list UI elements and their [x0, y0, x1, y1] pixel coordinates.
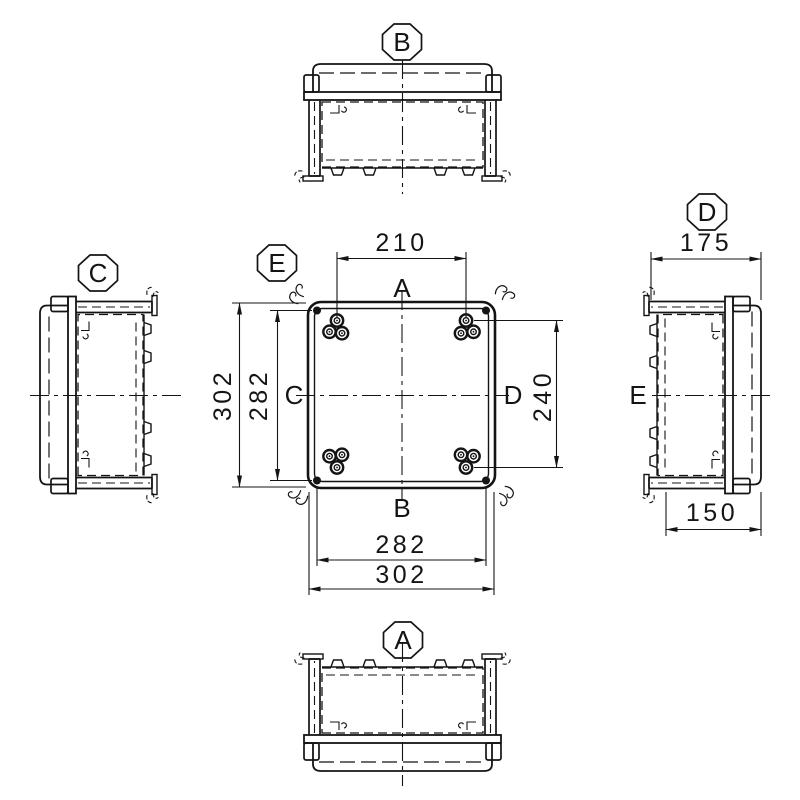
- view-label-top: B: [393, 27, 410, 57]
- right-view-axis-label: E: [629, 380, 646, 410]
- view-label-bottom: A: [394, 625, 412, 655]
- dim-text-302-bottom: 302: [375, 561, 427, 589]
- corner-tab-mark-top-left: [287, 283, 309, 305]
- corner-tab-mark-top-right: [494, 283, 516, 305]
- drawing-text: B A C D E A B C D E 210 302 282 240 282 …: [89, 27, 739, 655]
- dim-text-282-left: 282: [245, 369, 273, 421]
- plan-side-label-top: A: [393, 273, 411, 303]
- view-label-plan: E: [268, 248, 285, 278]
- hole-cluster-top-right: [455, 314, 480, 339]
- dim-text-175: 175: [680, 229, 732, 257]
- dim-text-210: 210: [375, 229, 427, 257]
- dim-text-150: 150: [686, 499, 738, 527]
- view-label-left: C: [89, 258, 108, 288]
- view-label-right: D: [698, 197, 717, 227]
- lid-screw-bottom-left: [313, 477, 321, 485]
- lid-screw-top-right: [482, 307, 490, 315]
- drawing-canvas: B A C D E A B C D E 210 302 282 240 282 …: [0, 0, 800, 800]
- centerlines: [30, 60, 774, 786]
- lid-screw-top-left: [313, 307, 321, 315]
- dim-text-302-left: 302: [209, 369, 237, 421]
- dimension-lines: [232, 252, 761, 595]
- hole-cluster-top-left: [323, 314, 348, 339]
- technical-drawing: B A C D E A B C D E 210 302 282 240 282 …: [0, 0, 800, 800]
- dim-text-240: 240: [529, 370, 557, 422]
- corner-tab-mark-bottom-right: [494, 485, 516, 507]
- dim-text-282-bottom: 282: [375, 531, 427, 559]
- plan-side-label-bottom: B: [393, 493, 410, 523]
- plan-side-label-left: C: [285, 380, 304, 410]
- plan-side-label-right: D: [504, 380, 523, 410]
- hole-cluster-bottom-right: [455, 449, 480, 474]
- lid-screw-bottom-right: [482, 477, 490, 485]
- hole-cluster-bottom-left: [323, 449, 348, 474]
- corner-tab-mark-bottom-left: [287, 485, 309, 507]
